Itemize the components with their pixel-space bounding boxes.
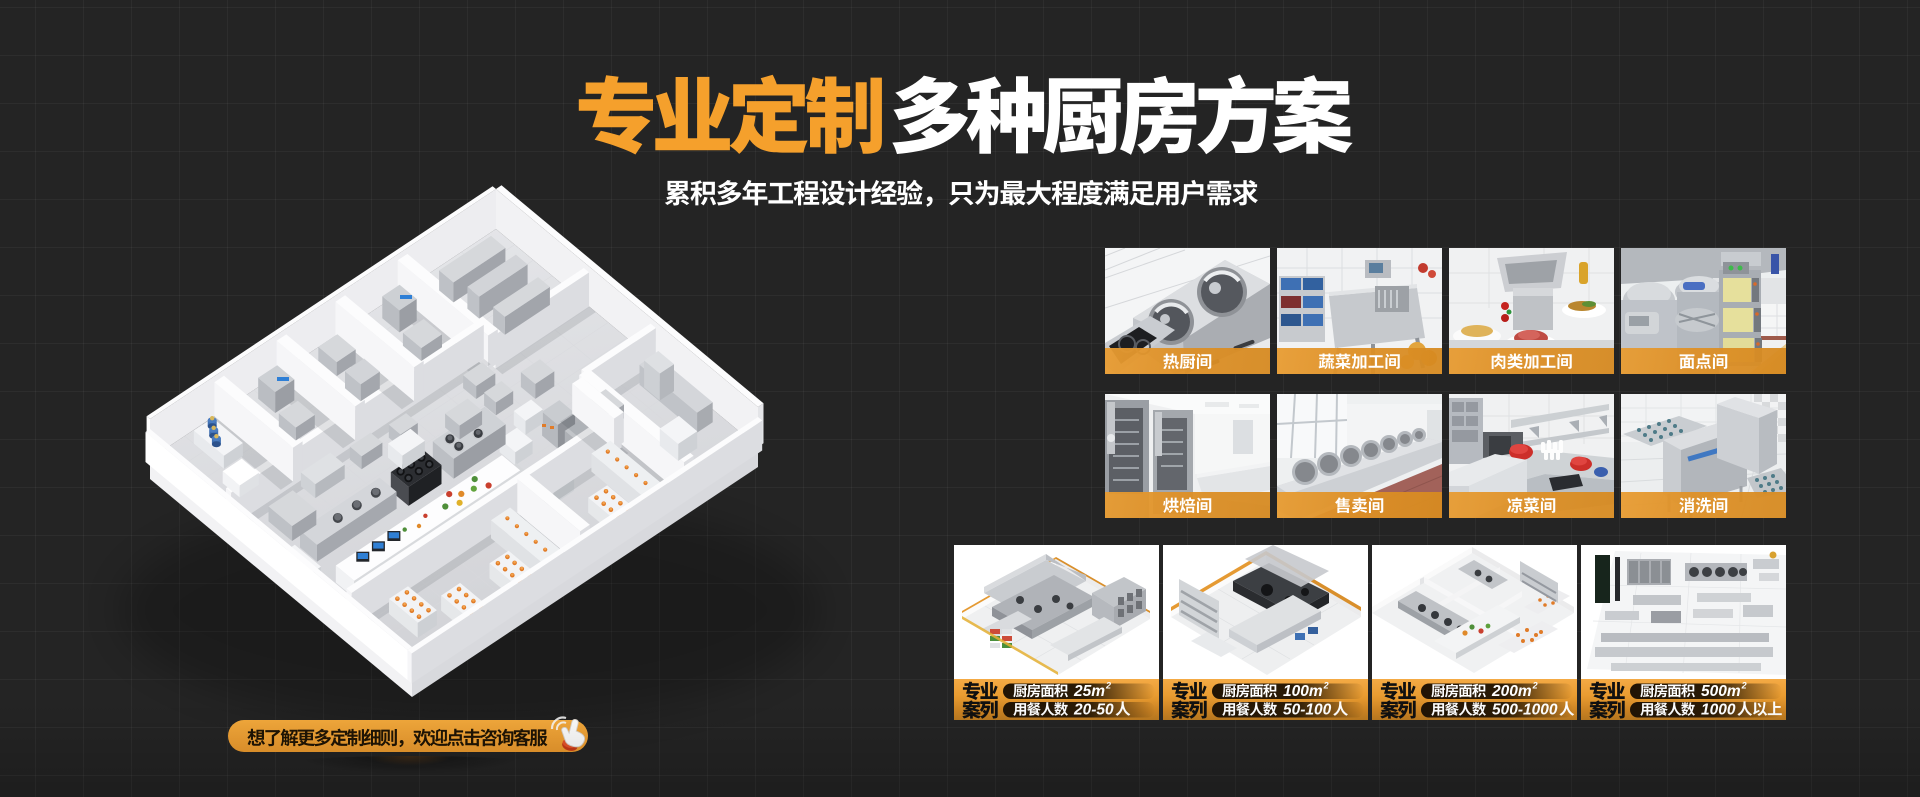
svg-text:25m: 25m	[1073, 683, 1105, 700]
svg-text:1000: 1000	[1701, 702, 1736, 719]
svg-text:2: 2	[1323, 681, 1329, 691]
svg-text:2: 2	[1532, 681, 1538, 691]
svg-text:500-1000: 500-1000	[1492, 702, 1558, 719]
svg-text:2: 2	[1105, 681, 1111, 691]
svg-text:500m: 500m	[1701, 683, 1741, 700]
svg-text:100m: 100m	[1283, 683, 1323, 700]
svg-text:2: 2	[1741, 681, 1747, 691]
svg-text:50-100: 50-100	[1283, 702, 1332, 719]
svg-text:20-50: 20-50	[1073, 702, 1114, 719]
svg-text:200m: 200m	[1491, 683, 1532, 700]
